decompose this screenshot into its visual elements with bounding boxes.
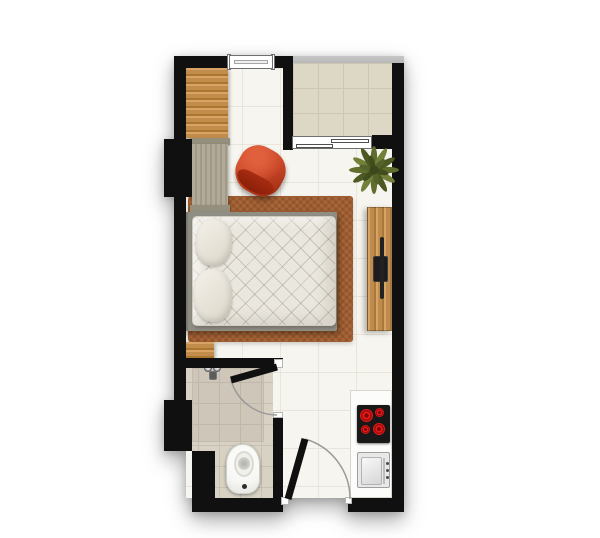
bathroom-door-arc bbox=[231, 380, 277, 415]
door-swings bbox=[0, 0, 600, 538]
apartment-plan bbox=[0, 0, 600, 538]
potted-plant bbox=[348, 144, 400, 196]
plant-center bbox=[370, 166, 379, 175]
entrance-door bbox=[288, 439, 350, 499]
entrance-door-leaf bbox=[288, 439, 305, 499]
entrance-door-arc bbox=[305, 439, 350, 499]
bathroom-door bbox=[231, 367, 277, 415]
floor-plan-image bbox=[0, 0, 600, 538]
bathroom-door-leaf bbox=[231, 367, 277, 380]
